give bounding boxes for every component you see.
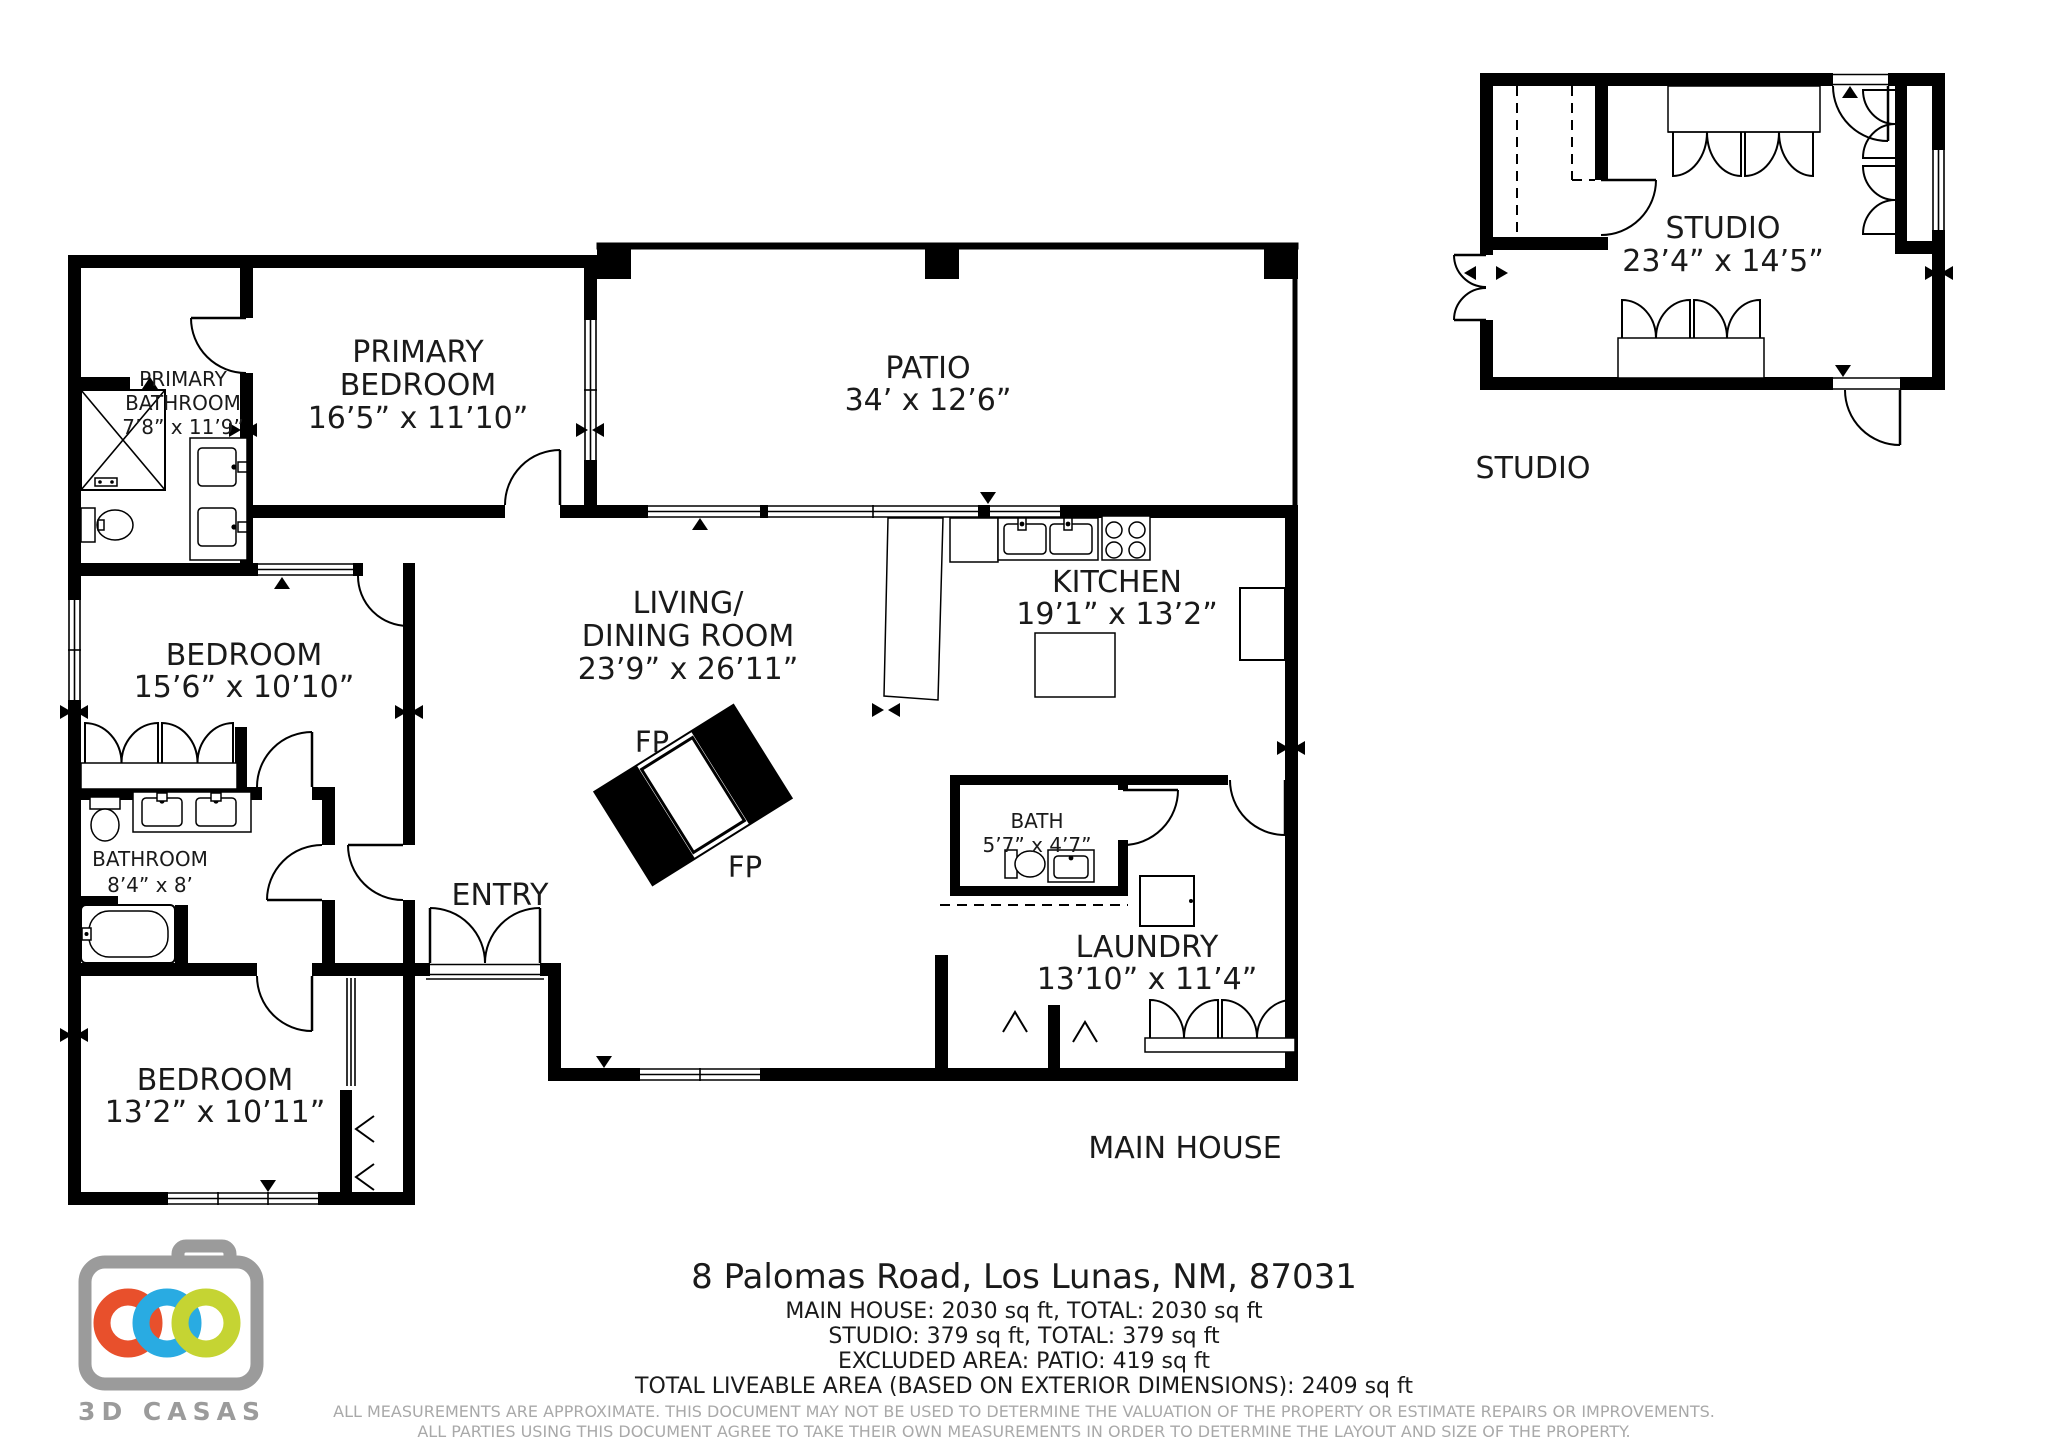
primary-bedroom-label-2: BEDROOM [340,368,497,403]
fireplace-label-1: FP [635,725,669,759]
primary-bedroom-dims: 16’5” x 11’10” [308,401,529,436]
bath-label: BATH [1010,809,1063,833]
living-dining-dims: 23’9” x 26’11” [578,652,799,687]
disclaimer-line-1: ALL MEASUREMENTS ARE APPROXIMATE. THIS D… [333,1402,1715,1421]
property-address: 8 Palomas Road, Los Lunas, NM, 87031 [691,1257,1357,1297]
primary-bathroom-label-2: BATHROOM [125,391,241,415]
floor-plan-page: PRIMARY BATHROOM 7’8” x 11’9” PRIMARY BE… [0,0,2048,1448]
entry-label: ENTRY [452,878,550,913]
floor-plan-document: PRIMARY BATHROOM 7’8” x 11’9” PRIMARY BE… [0,0,2048,1448]
patio-dims: 34’ x 12’6” [845,383,1012,418]
bedroom-south-label: BEDROOM [137,1063,294,1098]
kitchen-label: KITCHEN [1052,565,1182,600]
studio-dashed [1517,86,1595,237]
area-excluded: EXCLUDED AREA: PATIO: 419 sq ft [838,1349,1210,1374]
main-house-caption: MAIN HOUSE [1088,1131,1281,1166]
living-dining-label-2: DINING ROOM [582,619,794,654]
primary-bedroom-label: PRIMARY [352,335,484,370]
closet-south-bedroom [356,1116,374,1190]
studio-room-dims: 23’4” x 14’5” [1622,244,1824,279]
main-house-plan: PRIMARY BATHROOM 7’8” x 11’9” PRIMARY BE… [60,243,1305,1205]
bathroom-dims: 8’4” x 8’ [107,873,193,897]
laundry-dims: 13’10” x 11’4” [1037,962,1258,997]
patio-label: PATIO [885,351,970,386]
primary-bathroom-dims: 7’8” x 11’9” [122,415,244,439]
primary-bathroom-label: PRIMARY [139,367,227,391]
bedroom-south-dims: 13’2” x 10’11” [105,1095,326,1130]
closet-west-bedroom [81,723,237,789]
area-total-liveable: TOTAL LIVEABLE AREA (BASED ON EXTERIOR D… [634,1374,1413,1399]
vanity-primary [190,438,247,560]
brand-logo: 3D CASAS [78,1246,266,1426]
laundry-label: LAUNDRY [1076,930,1219,965]
bath-dims: 5’7” x 4’7” [983,833,1092,857]
area-studio: STUDIO: 379 sq ft, TOTAL: 379 sq ft [828,1324,1220,1349]
kitchen-dims: 19’1” x 13’2” [1016,597,1218,632]
disclaimer-line-2: ALL PARTIES USING THIS DOCUMENT AGREE TO… [417,1422,1630,1441]
bathroom-label: BATHROOM [92,847,208,871]
studio-caption: STUDIO [1476,451,1591,486]
studio-plan: STUDIO 23’4” x 14’5” STUDIO [1454,73,1953,486]
bedroom-west-dims: 15’6” x 10’10” [134,670,355,705]
area-main-house: MAIN HOUSE: 2030 sq ft, TOTAL: 2030 sq f… [785,1299,1263,1324]
camera-icon [85,1246,257,1384]
fireplace-label-2: FP [728,850,762,884]
studio-room-label: STUDIO [1666,211,1781,246]
bedroom-west-label: BEDROOM [166,638,323,673]
toilet-primary [81,508,133,542]
footer: 8 Palomas Road, Los Lunas, NM, 87031 MAI… [333,1257,1715,1441]
brand-name: 3D CASAS [78,1397,266,1426]
living-dining-label: LIVING/ [633,586,745,621]
